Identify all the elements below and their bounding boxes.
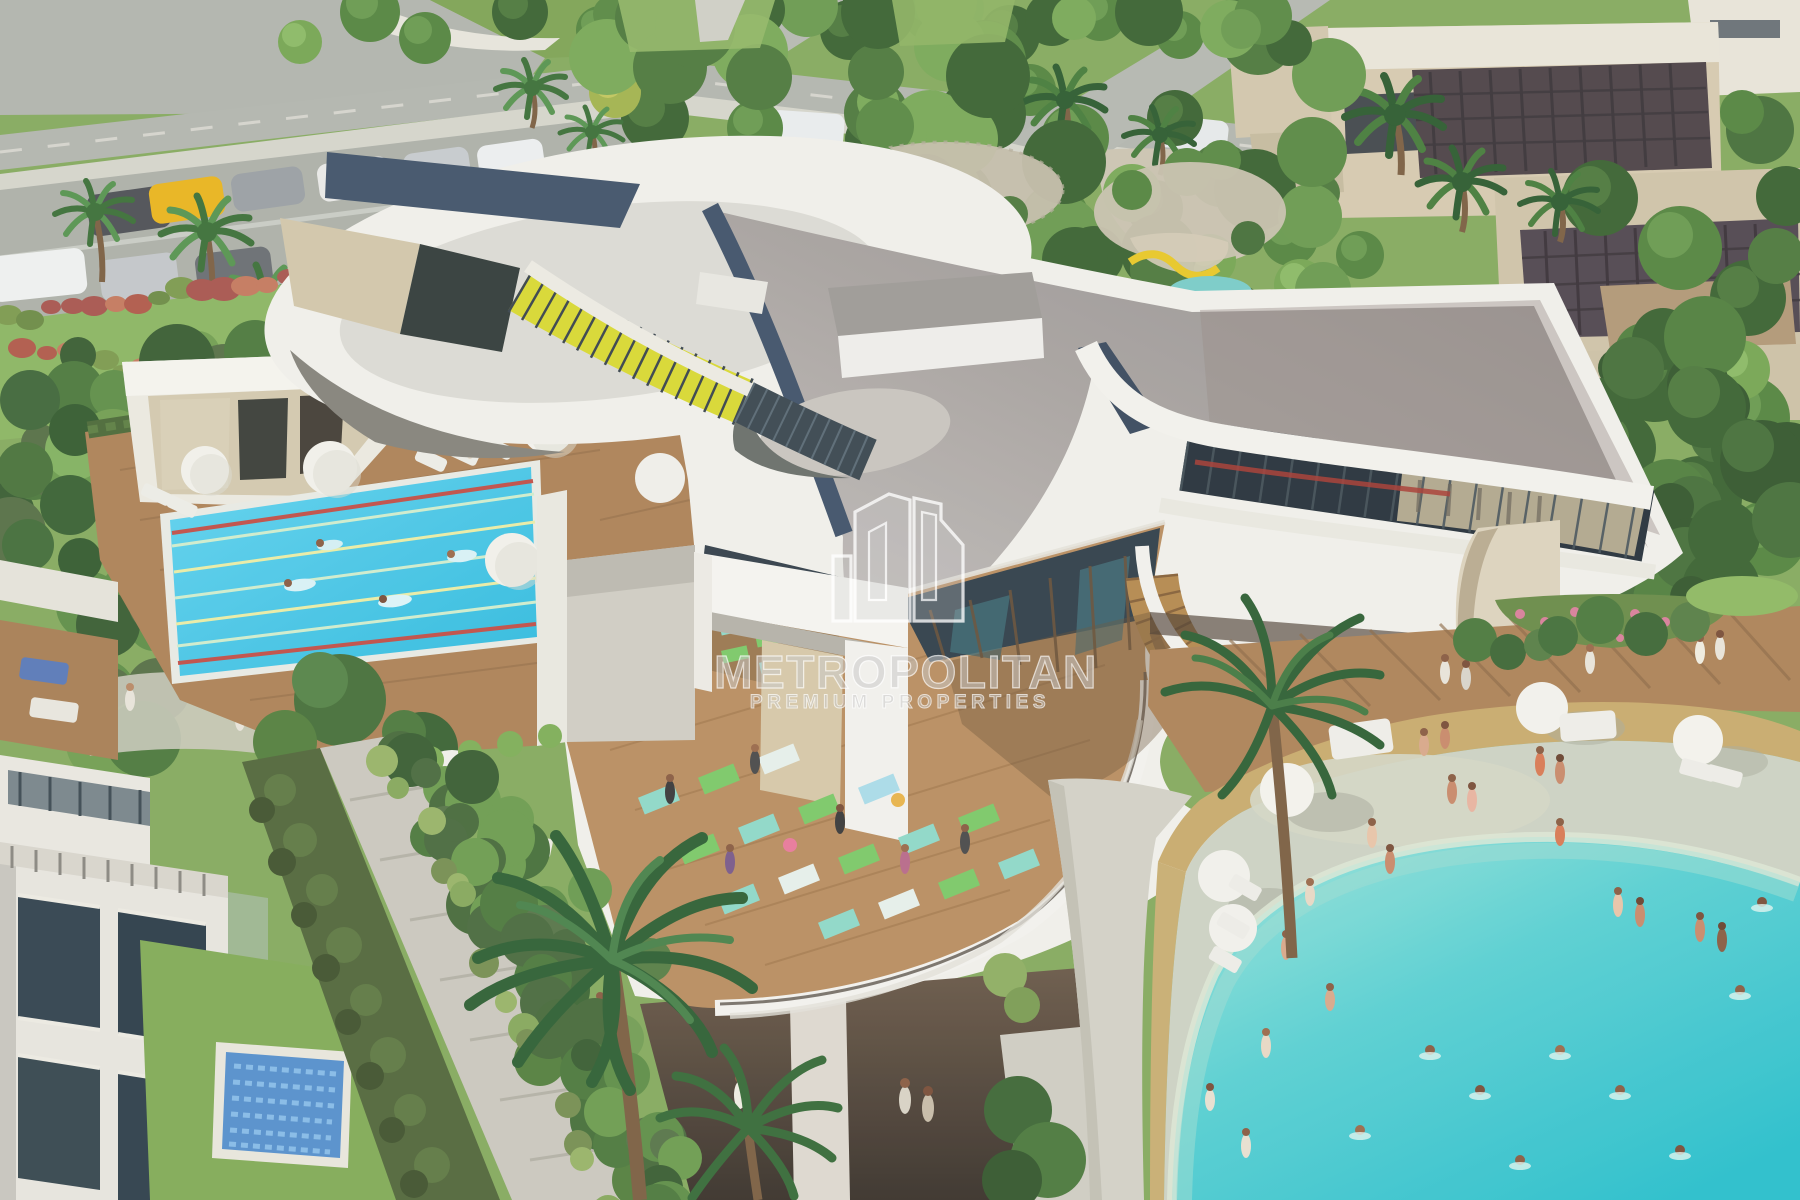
svg-text:METROPOLITAN: METROPOLITAN <box>714 646 1098 698</box>
svg-text:PREMIUM PROPERTIES: PREMIUM PROPERTIES <box>750 692 1050 713</box>
